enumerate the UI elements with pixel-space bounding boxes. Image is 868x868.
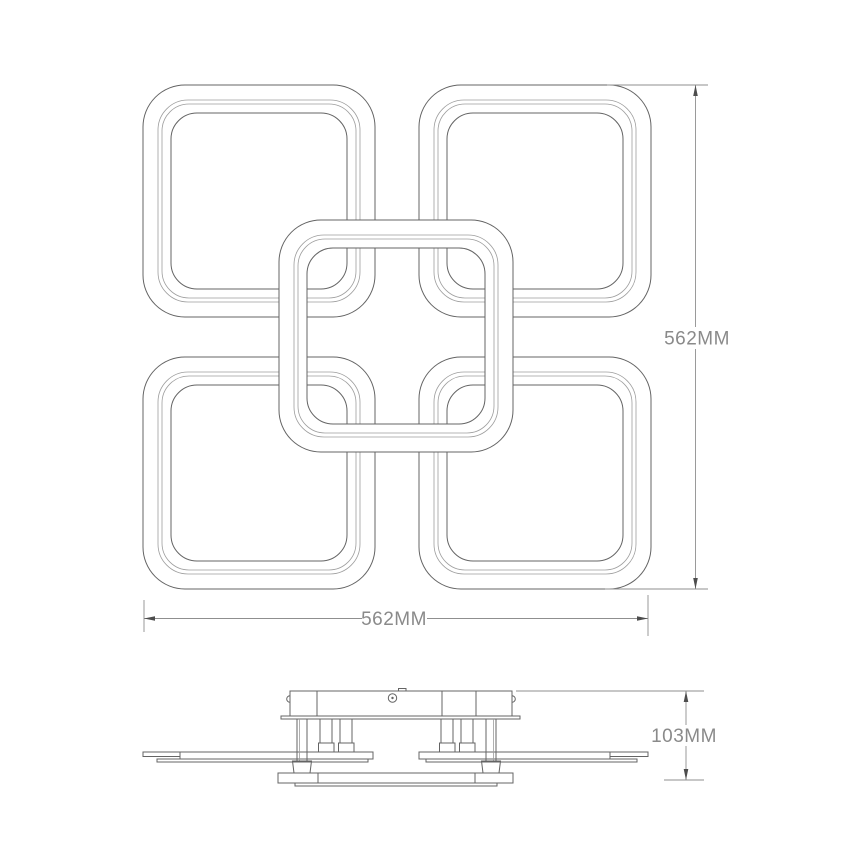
ring-bottom-right — [419, 357, 651, 589]
canopy-box — [290, 691, 512, 716]
ring-contour-line — [298, 239, 494, 433]
dim-height: 562MM — [605, 85, 730, 589]
standoff-post-short — [340, 719, 352, 743]
ring-contour-line — [158, 372, 360, 574]
standoff-post-short — [320, 719, 332, 743]
post-foot-short — [460, 743, 476, 752]
top-view — [143, 85, 651, 589]
ring-top-right — [419, 85, 651, 317]
arrowhead-up-icon — [693, 85, 698, 96]
plates — [143, 752, 648, 786]
ring-contour-line — [158, 100, 360, 302]
ceiling-lamp-drawing: 562MM 562MM 103MM — [0, 0, 868, 868]
ring-top-left — [143, 85, 375, 317]
side-view — [143, 689, 648, 787]
arrowhead-down-icon — [684, 769, 689, 780]
post-foot-short — [319, 743, 335, 752]
post-foot-short — [339, 743, 355, 752]
ring-center — [279, 220, 513, 452]
ring-center-frame — [279, 220, 513, 452]
screw-center-dot — [391, 697, 393, 699]
standoff-post-short — [441, 719, 453, 743]
upper-left-plate-lip — [157, 759, 368, 762]
arrowhead-left-icon — [144, 616, 155, 621]
ring-outer-edge — [143, 85, 375, 317]
dim-width: 562MM — [144, 595, 648, 636]
ring-inner-edge — [171, 113, 347, 289]
arrowhead-right-icon — [637, 616, 648, 621]
ring-inner-edge — [447, 385, 623, 561]
dimension-width-label: 562MM — [361, 609, 427, 630]
standoff-post-long-left — [297, 719, 307, 761]
ring-contour-line — [434, 372, 636, 574]
upper-left-plate-tip — [143, 752, 180, 757]
post-foot-short — [440, 743, 456, 752]
ring-bottom-left — [143, 357, 375, 589]
arrowhead-up-icon — [684, 691, 689, 702]
canopy-flange — [281, 716, 520, 719]
standoff-post-long-right — [486, 719, 496, 761]
ring-contour-line — [434, 100, 636, 302]
upper-right-plate-tip — [610, 752, 648, 757]
upper-left-plate-body — [180, 752, 373, 759]
ring-contour-line — [438, 104, 632, 298]
center-plate-body — [278, 773, 513, 783]
standoff-post-short — [461, 719, 473, 743]
ring-contour-line — [438, 376, 632, 570]
dimension-fixture-height-label: 103MM — [651, 726, 717, 747]
dimension-height-label: 562MM — [664, 329, 730, 350]
ring-contour-line — [162, 376, 356, 570]
arrowhead-down-icon — [693, 578, 698, 589]
standoffs — [293, 719, 501, 773]
ring-contour-line — [162, 104, 356, 298]
ring-inner-edge — [447, 113, 623, 289]
upper-right-plate-lip — [426, 759, 637, 762]
ring-outer-edge — [419, 85, 651, 317]
ring-outer-edge — [419, 357, 651, 589]
post-foot-long-right — [482, 761, 501, 773]
ring-inner-edge — [171, 385, 347, 561]
post-foot-long-left — [293, 761, 312, 773]
ring-contour-line — [294, 235, 498, 437]
technical-drawing-canvas: 562MM 562MM 103MM — [0, 0, 868, 868]
center-plate-lip — [295, 783, 497, 786]
dim-fixture-height: 103MM — [516, 691, 717, 780]
upper-right-plate-body — [419, 752, 610, 759]
canopy — [281, 689, 520, 720]
ring-outer-edge — [143, 357, 375, 589]
